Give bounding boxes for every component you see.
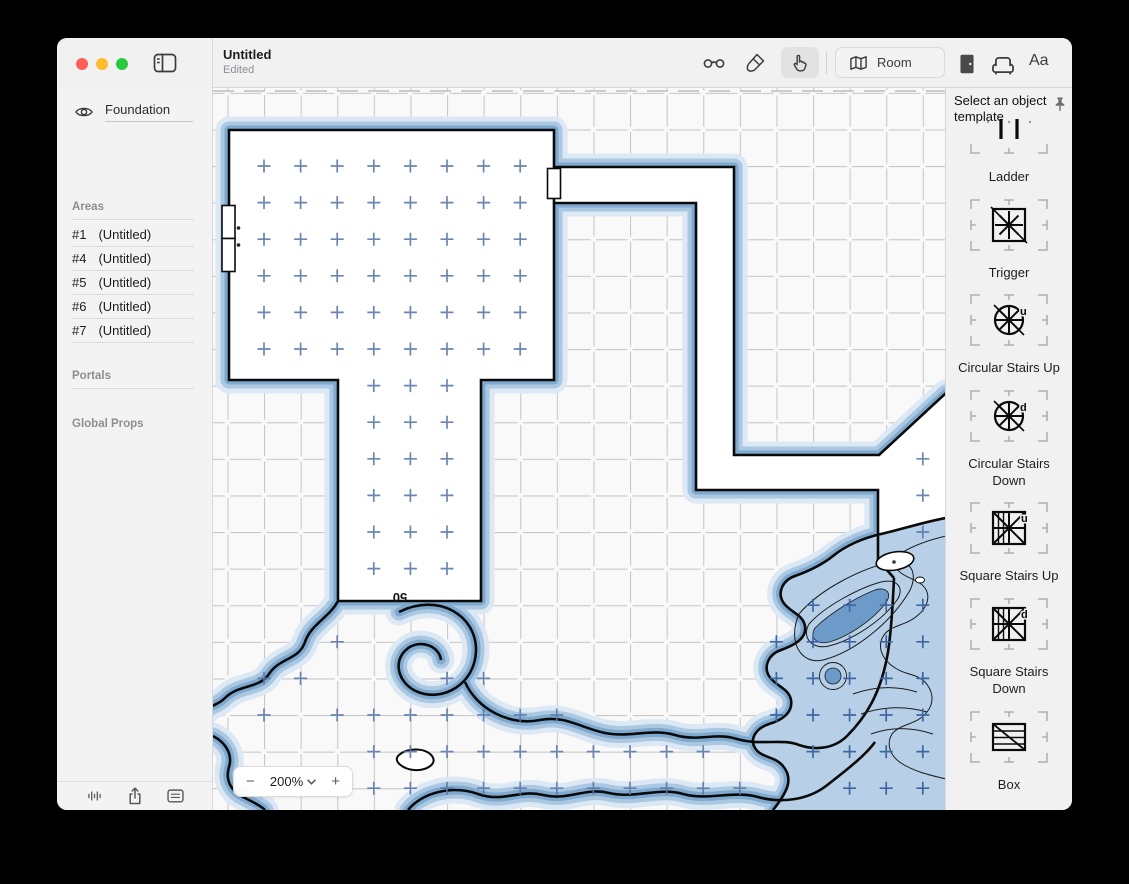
area-item-5[interactable]: #5(Untitled)	[72, 270, 194, 295]
area-name: (Untitled)	[98, 251, 151, 266]
close-window-button[interactable]	[76, 58, 88, 70]
area-name: (Untitled)	[98, 275, 151, 290]
area-number: #7	[72, 323, 86, 338]
pan-hand-tool-button[interactable]	[781, 47, 819, 78]
svg-text:u: u	[1021, 513, 1028, 525]
document-title: Untitled	[223, 47, 271, 63]
layer-name-field[interactable]: Foundation	[105, 102, 193, 122]
sidebar-toggle-icon[interactable]	[153, 53, 177, 73]
cave-islet	[397, 749, 434, 770]
levels-icon[interactable]	[86, 788, 103, 804]
template-label-circular-stairs-down[interactable]: Circular Stairs Down	[963, 456, 1055, 489]
pin-icon[interactable]	[1052, 96, 1068, 114]
zoom-level-dropdown[interactable]: 200%	[270, 774, 316, 789]
area-name: (Untitled)	[98, 227, 151, 242]
titlebar: Untitled Edited Room	[57, 38, 1072, 88]
minimize-window-button[interactable]	[96, 58, 108, 70]
area-item-1[interactable]: #1(Untitled)	[72, 222, 194, 247]
right-door[interactable]	[548, 169, 561, 199]
svg-text:d: d	[1020, 402, 1027, 414]
template-label-ladder[interactable]: Ladder	[946, 169, 1072, 186]
area-number: #6	[72, 299, 86, 314]
islet	[916, 577, 925, 583]
area-number: #1	[72, 227, 86, 242]
layer-row-foundation[interactable]: Foundation	[74, 102, 193, 122]
eye-visibility-icon[interactable]	[74, 105, 94, 119]
map-canvas-area[interactable]: 50 − 200% +	[213, 88, 946, 810]
furniture-tool-icon[interactable]	[990, 53, 1016, 77]
share-icon[interactable]	[127, 787, 143, 805]
paint-tool-icon[interactable]	[742, 51, 768, 75]
water-deep-spot	[825, 668, 841, 684]
template-label-trigger[interactable]: Trigger	[946, 265, 1072, 282]
area-name: (Untitled)	[98, 323, 151, 338]
template-item-square-stairs-down[interactable]: d	[946, 592, 1072, 656]
trigger-icon	[991, 207, 1027, 243]
template-item-ladder[interactable]	[946, 118, 1072, 160]
map-icon	[849, 54, 868, 72]
sidebar-bottom-bar	[57, 781, 212, 810]
area-name: (Untitled)	[98, 299, 151, 314]
document-status: Edited	[223, 64, 271, 77]
svg-text:u: u	[1020, 306, 1027, 318]
draw-mode-label: Room	[877, 55, 912, 70]
draw-mode-select[interactable]: Room	[835, 47, 945, 78]
template-item-square-stairs-up[interactable]: u	[946, 496, 1072, 560]
template-label-box[interactable]: Box	[946, 777, 1072, 794]
section-divider	[72, 388, 194, 389]
zoom-control[interactable]: − 200% +	[233, 766, 353, 797]
document-title-block: Untitled Edited	[223, 47, 271, 77]
area-item-6[interactable]: #6(Untitled)	[72, 294, 194, 319]
zoom-out-button[interactable]: −	[246, 773, 255, 790]
template-item-box[interactable]	[946, 705, 1072, 769]
areas-section-label: Areas	[72, 201, 104, 213]
layers-sidebar: Foundation Areas #1(Untitled) #4(Untitle…	[57, 88, 212, 810]
hand-tool-icon	[790, 53, 810, 73]
area-number: #5	[72, 275, 86, 290]
portals-section-label: Portals	[72, 370, 111, 382]
notes-icon[interactable]	[167, 789, 184, 803]
room-dimension-label: 50	[393, 590, 407, 605]
door-tool-icon[interactable]	[954, 52, 980, 76]
template-label-circular-stairs-up[interactable]: Circular Stairs Up	[946, 360, 1072, 377]
area-item-7[interactable]: #7(Untitled)	[72, 318, 194, 343]
toolbar-divider	[826, 52, 827, 74]
preview-glasses-icon[interactable]	[701, 51, 727, 75]
section-divider	[72, 219, 194, 220]
template-item-trigger[interactable]	[946, 193, 1072, 257]
template-item-circular-stairs-down[interactable]: d	[946, 384, 1072, 448]
template-label-square-stairs-up[interactable]: Square Stairs Up	[946, 568, 1072, 585]
zoom-in-button[interactable]: +	[331, 773, 340, 790]
box-icon	[993, 724, 1025, 750]
text-style-tool[interactable]: Aa	[1029, 52, 1049, 70]
zoom-level-value: 200%	[270, 774, 303, 789]
template-item-circular-stairs-up[interactable]: u	[946, 288, 1072, 352]
global-props-section-label: Global Props	[72, 418, 144, 430]
map-canvas[interactable]: 50	[213, 88, 946, 810]
zoom-window-button[interactable]	[116, 58, 128, 70]
area-item-4[interactable]: #4(Untitled)	[72, 246, 194, 271]
area-number: #4	[72, 251, 86, 266]
svg-text:d: d	[1021, 609, 1028, 621]
template-label-square-stairs-down[interactable]: Square Stairs Down	[963, 664, 1055, 697]
map-dot	[892, 560, 896, 564]
object-template-panel: Select an object template Ladder	[946, 88, 1072, 810]
chevron-down-icon	[307, 779, 316, 785]
app-window: Untitled Edited Room	[57, 38, 1072, 810]
